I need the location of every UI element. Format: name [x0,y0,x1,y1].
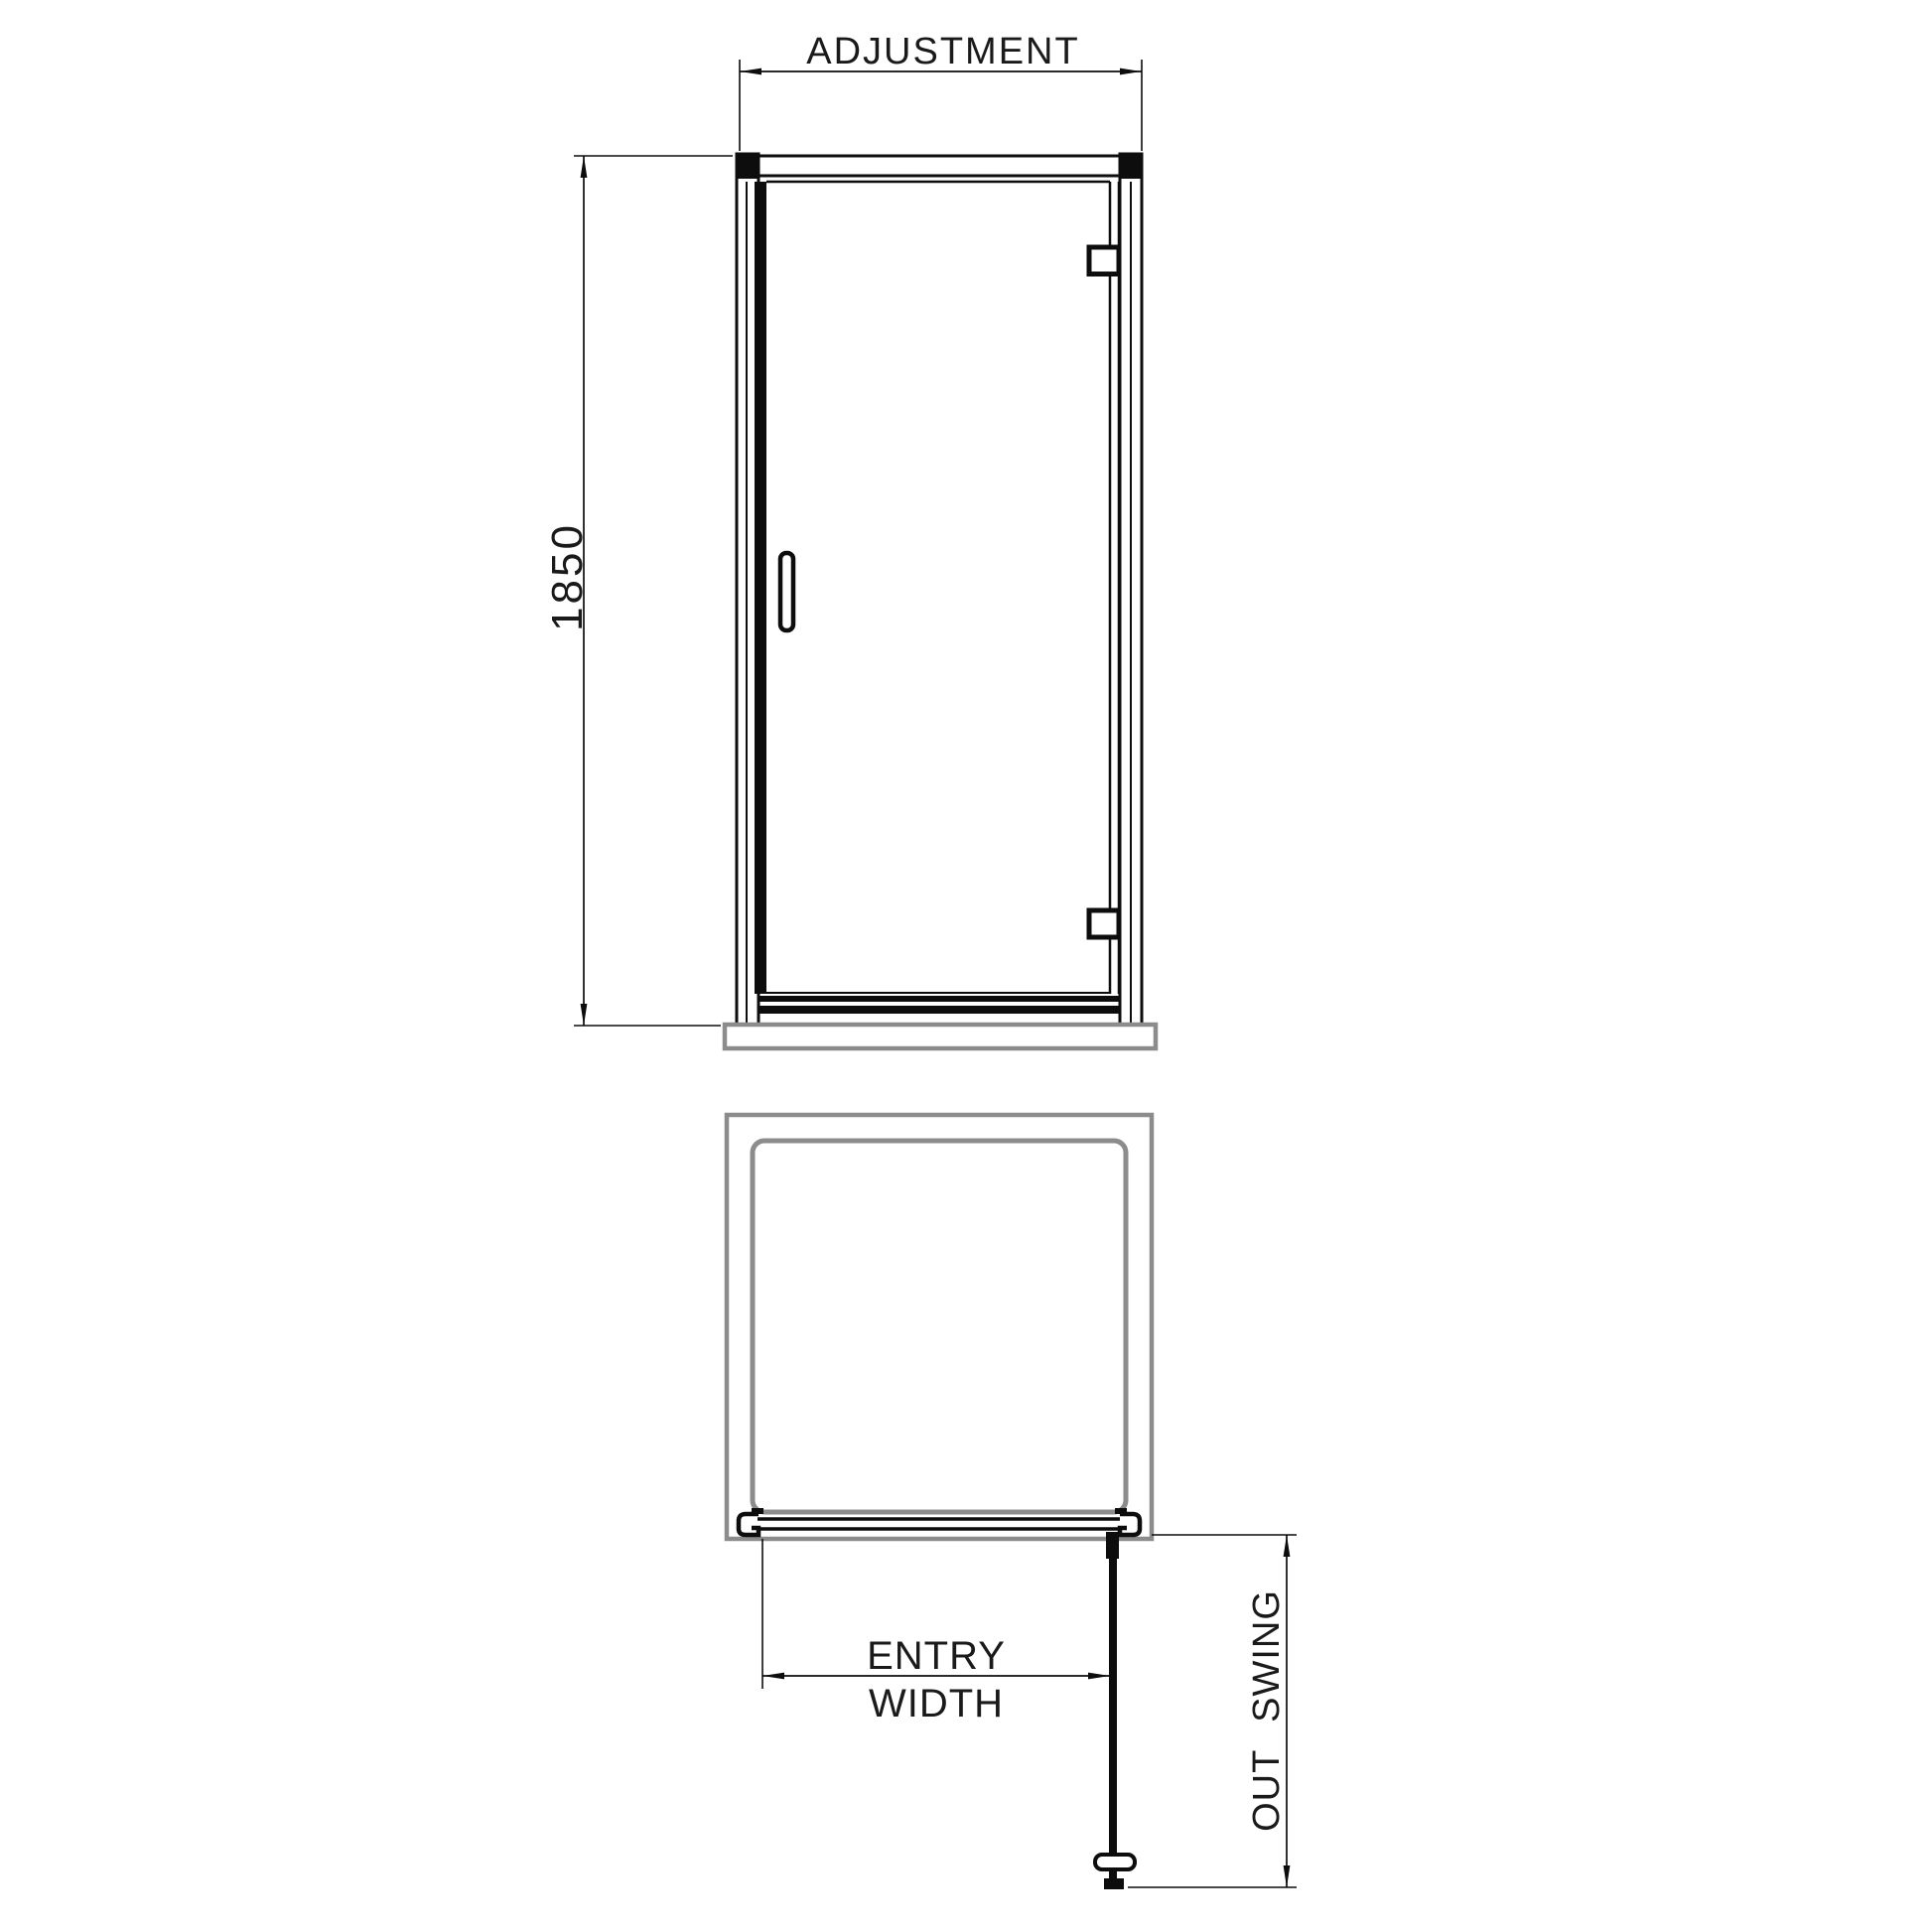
plan-door-hinge-block [1106,1532,1119,1559]
bottom-hinge [1089,910,1119,937]
entry-width-label-line2: WIDTH [869,1682,1004,1725]
out-swing-label: OUT SWING [1246,1589,1288,1832]
top-rail [759,156,1120,176]
height-extension-lines [574,156,733,1026]
out-swing-dimension: OUT SWING [1128,1535,1297,1887]
plan-open-door-panel [1109,1559,1117,1880]
entry-width-label-line1: ENTRY [867,1634,1006,1678]
threshold-band-upper [759,996,1120,1002]
door-frame [737,154,1142,1027]
shower-tray [725,1025,1156,1048]
top-hinge [1089,247,1119,274]
door-glass-left-stile [755,182,766,994]
door-right-stile [1110,182,1119,994]
adjustment-dimension: ADJUSTMENT [740,31,1142,151]
adjustment-label: ADJUSTMENT [806,31,1079,72]
door-handle [780,553,793,630]
plan-door-handle [1095,1855,1135,1869]
drawing-canvas: ADJUSTMENT 1850 [0,0,1932,1932]
plan-open-door-end-cap [1104,1878,1124,1889]
plan-view: ENTRY WIDTH OUT SWING [727,1115,1297,1889]
threshold [759,993,1120,1014]
plan-tray-outline [727,1115,1152,1539]
height-dimension: 1850 [543,156,733,1026]
front-elevation-view: ADJUSTMENT 1850 [543,31,1156,1048]
adjustment-extension-lines [740,60,1142,151]
shower-door-technical-drawing: ADJUSTMENT 1850 [0,0,1932,1932]
entry-width-dimension: ENTRY WIDTH [762,1539,1110,1725]
right-wall-profile-cap [1120,154,1142,179]
plan-open-door [1095,1532,1135,1889]
threshold-band-lower [759,1006,1120,1014]
left-wall-profile-cap [737,154,759,179]
